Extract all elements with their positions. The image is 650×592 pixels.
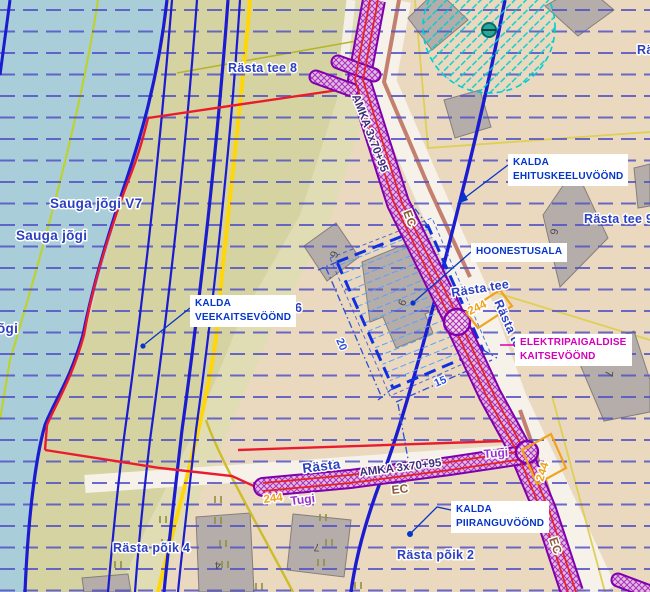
leader-dot <box>410 300 415 305</box>
leader-dot <box>140 343 145 348</box>
leader-dot <box>407 531 413 537</box>
callout-line: KALDA <box>195 297 291 311</box>
river-label: Sauga jõgi V7 <box>50 196 142 211</box>
callout-line: KALDA <box>456 503 544 517</box>
street-label: Rästa tee 8 <box>228 61 297 75</box>
river-label: Sauga jõgi <box>16 228 87 243</box>
pole-label: Tugi <box>290 491 316 508</box>
callout-piiranguvoond: KALDA PIIRANGUVÖÖND <box>451 501 549 533</box>
planning-map-canvas[interactable]: Rästa tee 8 Rä Sauga jõgi V7 Sauga jõgi … <box>0 0 650 592</box>
pole-label: Tugi <box>483 445 508 461</box>
river-label-partial: õgi <box>0 321 18 336</box>
callout-hoonestusala: HOONESTUSALA <box>471 243 567 262</box>
map-graphics: Rästa tee 8 Rä Sauga jõgi V7 Sauga jõgi … <box>0 0 650 592</box>
callout-line: HOONESTUSALA <box>476 245 562 259</box>
street-label: Rästa tee 9 <box>584 212 650 226</box>
street-label: Rästa põik 4 <box>113 541 190 555</box>
callout-line: VEEKAITSEVÖÖND <box>195 311 291 325</box>
callout-veekaitsevoond: KALDA VEEKAITSEVÖÖND <box>190 295 296 327</box>
building-number: 4 <box>214 559 221 571</box>
street-label-partial: Rä <box>637 43 650 57</box>
building-number: 7 <box>313 541 320 553</box>
street-label: Rästa põik 2 <box>397 548 474 562</box>
callout-line: EHITUSKEELUVÖÖND <box>513 170 623 184</box>
callout-line: KALDA <box>513 156 623 170</box>
callout-line: PIIRANGUVÖÖND <box>456 517 544 531</box>
callout-line: ELEKTRIPAIGALDISE <box>520 336 627 350</box>
callout-elektripaigaldise-kaitsevoond: ELEKTRIPAIGALDISE KAITSEVÖÖND <box>515 334 632 366</box>
callout-ehituskeeluvoond: KALDA EHITUSKEELUVÖÖND <box>508 154 628 186</box>
callout-line: KAITSEVÖÖND <box>520 350 627 364</box>
pole-number-label: 244 <box>263 492 284 506</box>
ec-label: EC <box>391 481 409 497</box>
